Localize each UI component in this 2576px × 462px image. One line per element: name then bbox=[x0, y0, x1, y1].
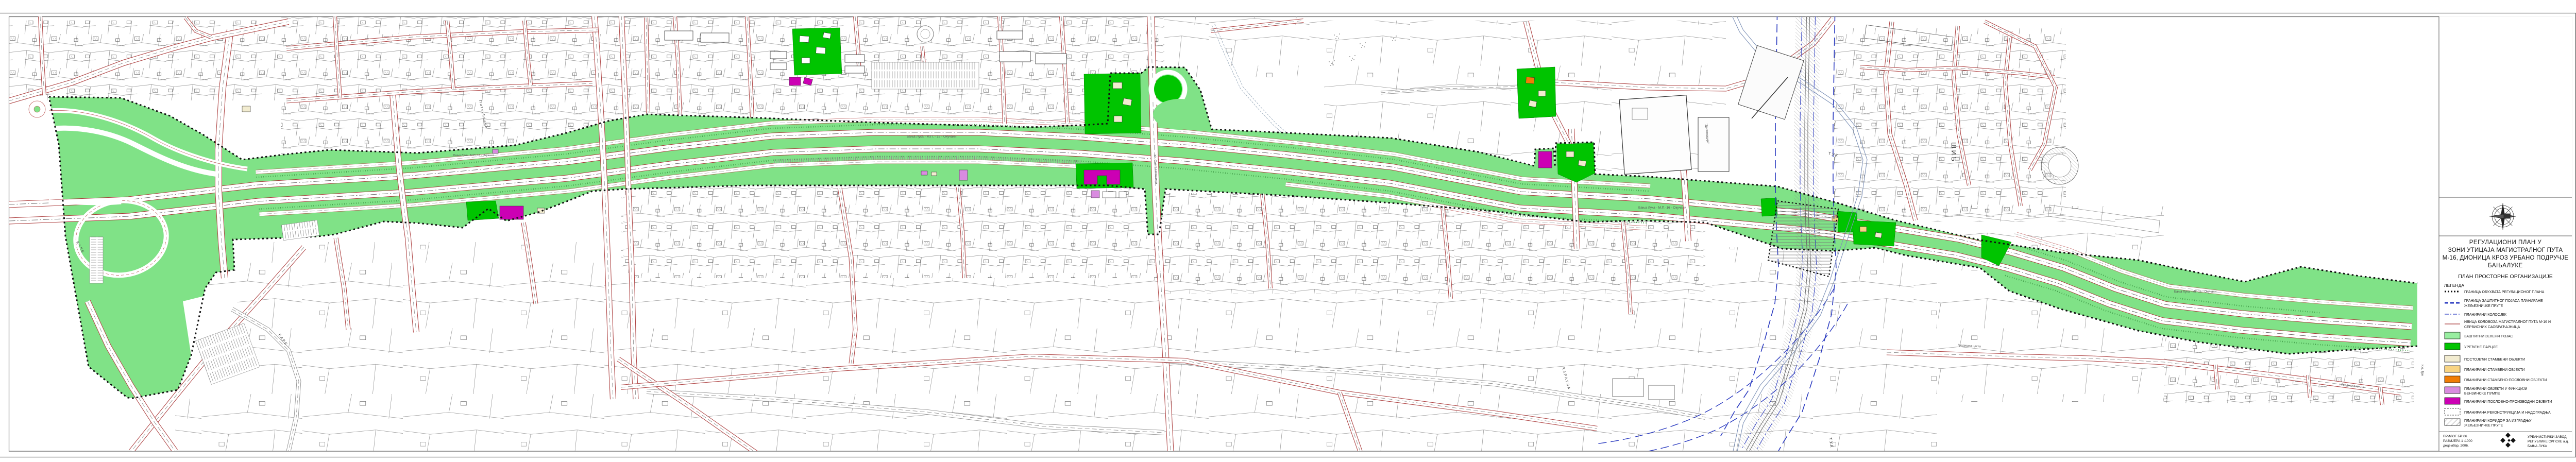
svg-text:ПЛАНИРАНИ КОРИДОР ЗА ИЗГРАДЊУ: ПЛАНИРАНИ КОРИДОР ЗА ИЗГРАДЊУ bbox=[2464, 419, 2532, 423]
svg-text:СЕРВИСНИХ САОБРАЋАЈНИЦА: СЕРВИСНИХ САОБРАЋАЈНИЦА bbox=[2464, 326, 2520, 329]
svg-text:Бања Лука - М.П.-16 - Окучани: Бања Лука - М.П.-16 - Окучани bbox=[453, 154, 494, 157]
svg-text:БЕНЗИНСКЕ ПУМПЕ: БЕНЗИНСКЕ ПУМПЕ bbox=[2464, 392, 2500, 396]
svg-text:РЕГУЛАЦИОНИ ПЛАН У: РЕГУЛАЦИОНИ ПЛАН У bbox=[2469, 239, 2542, 246]
svg-text:ПРИЛОГ БР.:06: ПРИЛОГ БР.:06 bbox=[2443, 435, 2467, 438]
svg-text:БАЊА ЛУКА: БАЊА ЛУКА bbox=[2528, 444, 2547, 448]
svg-text:Бања Лука - М.П. - 16 - Окучан: Бања Лука - М.П. - 16 - Окучани bbox=[907, 135, 957, 139]
svg-text:РЕПУБЛИКЕ СРПСКЕ а.д.: РЕПУБЛИКЕ СРПСКЕ а.д. bbox=[2528, 440, 2569, 443]
svg-text:ЗОНИ УТИЦАЈА МАГИСТРАЛНОГ ПУТА: ЗОНИ УТИЦАЈА МАГИСТРАЛНОГ ПУТА bbox=[2448, 247, 2563, 253]
svg-text:ПЛАНИРАНИ СТАМБЕНО-ПОСЛОВНИ ОБ: ПЛАНИРАНИ СТАМБЕНО-ПОСЛОВНИ ОБЈЕКТИ bbox=[2464, 379, 2547, 382]
svg-text:ПЛАНИРАНИ СТАМБЕНИ ОБЈЕКТИ: ПЛАНИРАНИ СТАМБЕНИ ОБЈЕКТИ bbox=[2464, 368, 2525, 372]
svg-text:Бања Лука - М.П.-16 - Окучани: Бања Лука - М.П.-16 - Окучани bbox=[1638, 206, 1686, 210]
svg-text:ИВИЦА КОЛОВОЗА МАГИСТРАЛНОГ ПУ: ИВИЦА КОЛОВОЗА МАГИСТРАЛНОГ ПУТА М-16 И bbox=[2464, 320, 2551, 324]
svg-text:ГРАНИЦА ЗАШТИТНОГ ПОЈАСА ПЛАНИ: ГРАНИЦА ЗАШТИТНОГ ПОЈАСА ПЛАНИРАНЕ bbox=[2464, 299, 2543, 303]
svg-text:Бања Лука - МП 16 - Окучани: Бања Лука - МП 16 - Окучани bbox=[2174, 290, 2216, 294]
svg-text:ГРАНИЦА ОБУХВАТА РЕГУЛАЦИОНОГ: ГРАНИЦА ОБУХВАТА РЕГУЛАЦИОНОГ ПЛАНА bbox=[2464, 290, 2545, 294]
svg-text:ПЛАН ПРОСТОРНЕ ОРГАНИЗАЦИЈЕ: ПЛАН ПРОСТОРНЕ ОРГАНИЗАЦИЈЕ bbox=[2458, 273, 2552, 280]
svg-text:ПЛАНИРАНИ КОЛОСЈЕК: ПЛАНИРАНИ КОЛОСЈЕК bbox=[2464, 313, 2507, 317]
svg-text:ЛЕГЕНДА: ЛЕГЕНДА bbox=[2444, 283, 2464, 288]
svg-text:ЖЕЉЕЗНИЧКЕ ПРУГЕ: ЖЕЉЕЗНИЧКЕ ПРУГЕ bbox=[2464, 304, 2503, 308]
svg-text:УРЕЂЕНЕ ПАРЦЛЕ: УРЕЂЕНЕ ПАРЦЛЕ bbox=[2464, 346, 2498, 349]
svg-text:УРБАНИСТИЧКИ ЗАВОД: УРБАНИСТИЧКИ ЗАВОД bbox=[2528, 435, 2567, 439]
svg-text:ЗАШТИТНИ ЗЕЛЕНИ ПОЈАС: ЗАШТИТНИ ЗЕЛЕНИ ПОЈАС bbox=[2464, 335, 2513, 338]
svg-text:М-16, ДИОНИЦА КРОЗ УРБАНО ПОДР: М-16, ДИОНИЦА КРОЗ УРБАНО ПОДРУЧЈЕ bbox=[2443, 255, 2569, 261]
svg-text:РАЗМЈЕРА 1 :1000: РАЗМЈЕРА 1 :1000 bbox=[2443, 439, 2472, 443]
svg-text:ПЛАНИРАНИ ПОСЛОВНО-ПРОИЗВОДНИ: ПЛАНИРАНИ ПОСЛОВНО-ПРОИЗВОДНИ ОБЈЕКТИ bbox=[2464, 400, 2552, 404]
svg-text:Ш И Б: Ш И Б bbox=[1950, 142, 1958, 161]
svg-text:К.о. Трн: К.о. Трн bbox=[2420, 365, 2424, 376]
svg-text:ПЛАНИРАНА РЕКОНСТРУКЦИЈА И НАД: ПЛАНИРАНА РЕКОНСТРУКЦИЈА И НАДОГРАДЊА bbox=[2464, 411, 2551, 415]
svg-text:децембар, 2006.: децембар, 2006. bbox=[2443, 443, 2469, 448]
svg-text:ПОСТОЈЕЋИ СТАМБЕНИ ОБЈЕКТИ: ПОСТОЈЕЋИ СТАМБЕНИ ОБЈЕКТИ bbox=[2464, 358, 2525, 362]
svg-text:ЖЕЉЕЗНИЧКЕ ПРУГЕ: ЖЕЉЕЗНИЧКЕ ПРУГЕ bbox=[2464, 424, 2503, 427]
svg-text:ПЛАНИРАНИ ОБЈЕКТИ У ФУНКЦИЈИ: ПЛАНИРАНИ ОБЈЕКТИ У ФУНКЦИЈИ bbox=[2464, 387, 2528, 391]
svg-text:БАЊАЛУКЕ: БАЊАЛУКЕ bbox=[2488, 263, 2523, 269]
